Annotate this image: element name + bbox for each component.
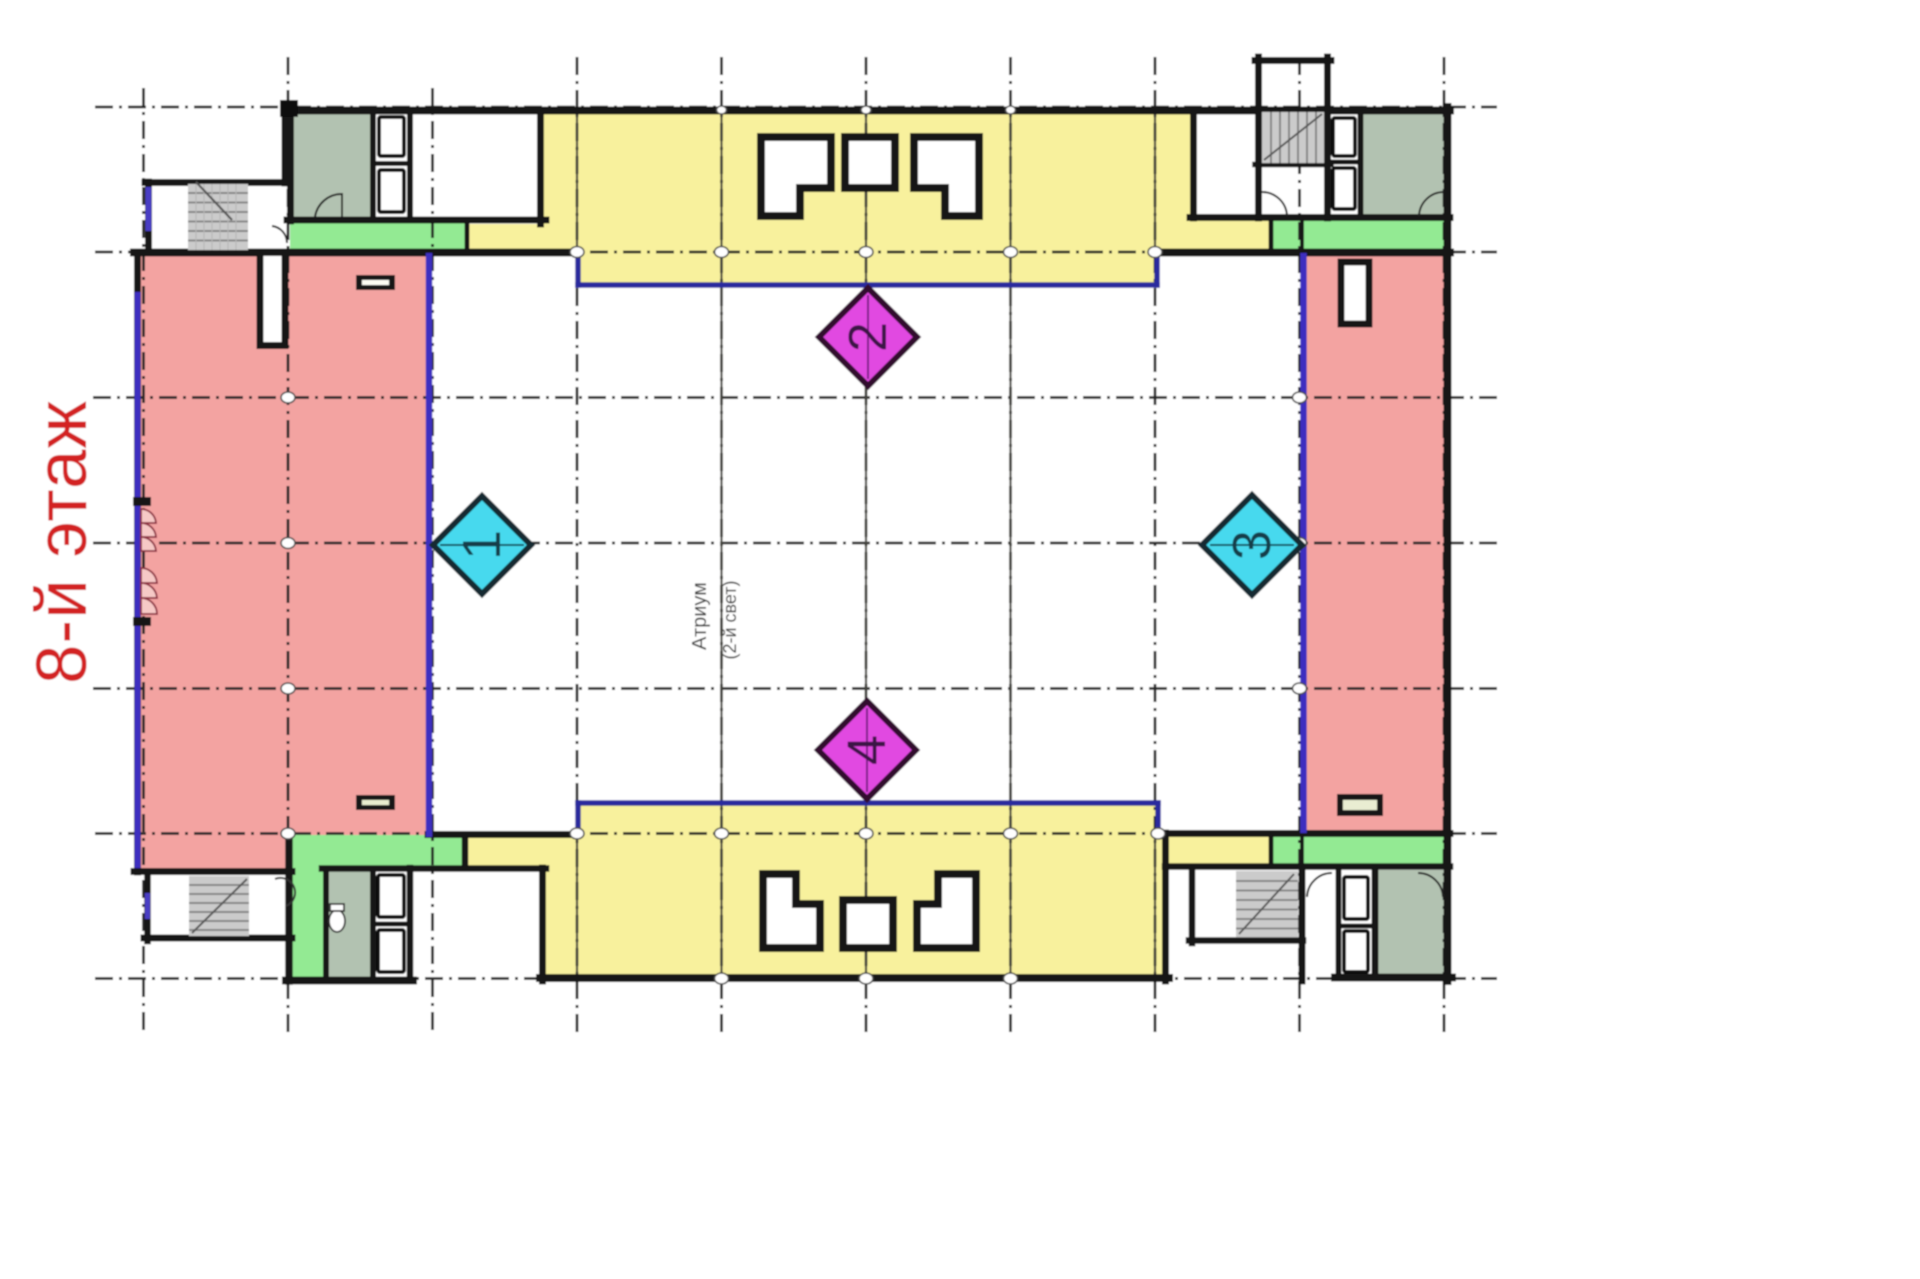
svg-text:2: 2	[838, 322, 898, 352]
svg-text:1: 1	[452, 530, 512, 560]
svg-text:8-й этаж: 8-й этаж	[23, 400, 102, 684]
svg-text:Атриум: Атриум	[689, 582, 711, 650]
svg-text:4: 4	[837, 735, 897, 765]
svg-text:3: 3	[1222, 530, 1282, 560]
svg-text:(2-й свет): (2-й свет)	[720, 580, 740, 659]
